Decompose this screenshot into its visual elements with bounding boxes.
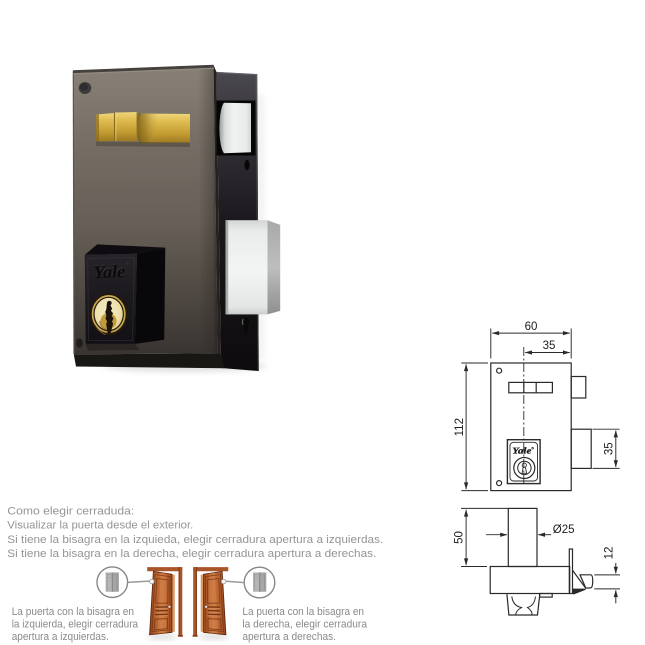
svg-text:Ø25: Ø25 bbox=[553, 524, 575, 536]
svg-text:La puerta con la bisagra en: La puerta con la bisagra en bbox=[12, 606, 134, 618]
svg-text:La puerta con la bisagra en: La puerta con la bisagra en bbox=[242, 606, 364, 618]
svg-text:50: 50 bbox=[453, 531, 465, 544]
svg-text:Como elegir cerraduda:: Como elegir cerraduda: bbox=[7, 506, 134, 518]
svg-text:Si tiene la bisagra en la dere: Si tiene la bisagra en la derecha, elegi… bbox=[7, 548, 376, 560]
svg-text:Yale: Yale bbox=[512, 446, 531, 456]
svg-text:112: 112 bbox=[454, 418, 466, 436]
svg-text:Visualizar la puerta desde el: Visualizar la puerta desde el exterior. bbox=[7, 520, 193, 532]
svg-text:la derecha, elegir cerradura: la derecha, elegir cerradura bbox=[242, 619, 367, 631]
svg-text:12: 12 bbox=[604, 547, 616, 560]
svg-text:Si tiene la bisagra en la izqu: Si tiene la bisagra en la izquieda, eleg… bbox=[7, 534, 383, 546]
svg-text:60: 60 bbox=[525, 321, 538, 333]
svg-text:la izquierda, elegir cerradura: la izquierda, elegir cerradura bbox=[12, 619, 139, 631]
svg-text:35: 35 bbox=[604, 442, 616, 455]
svg-text:Yale: Yale bbox=[93, 261, 125, 282]
svg-text:apertura a derechas.: apertura a derechas. bbox=[242, 631, 336, 643]
svg-text:apertura a izquierdas.: apertura a izquierdas. bbox=[12, 631, 109, 643]
svg-text:35: 35 bbox=[543, 340, 556, 352]
